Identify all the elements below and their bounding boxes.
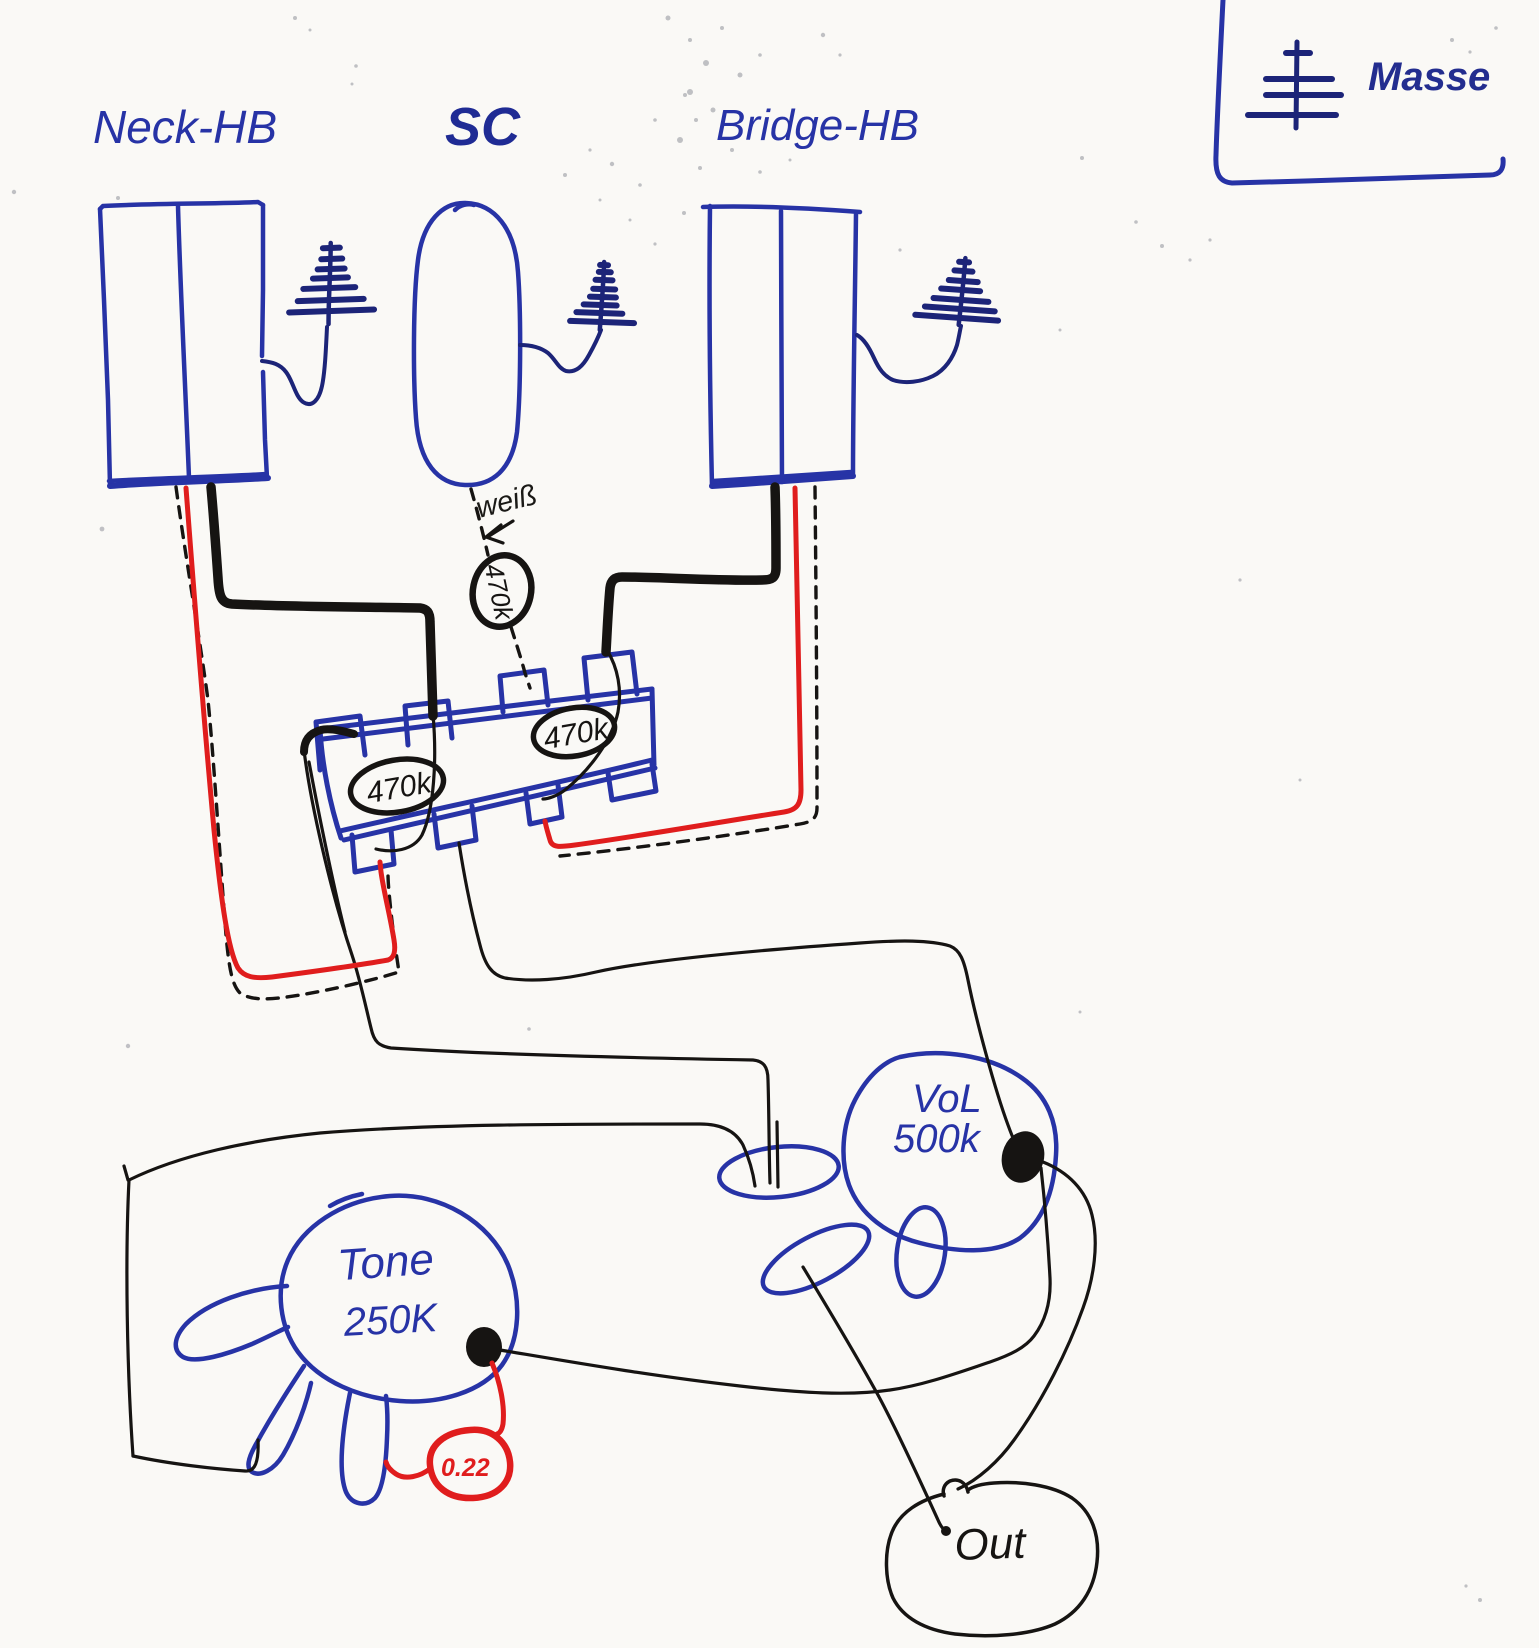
svg-text:500k: 500k [893,1117,982,1161]
svg-text:Bridge-HB: Bridge-HB [716,101,919,150]
svg-text:Out: Out [954,1518,1028,1570]
svg-text:Neck-HB: Neck-HB [93,101,277,153]
svg-text:SC: SC [445,97,521,157]
svg-text:Masse: Masse [1368,55,1490,99]
svg-text:VoL: VoL [912,1077,982,1121]
svg-text:0.22: 0.22 [441,1454,490,1482]
svg-text:250K: 250K [342,1296,441,1345]
svg-text:Tone: Tone [336,1235,435,1291]
